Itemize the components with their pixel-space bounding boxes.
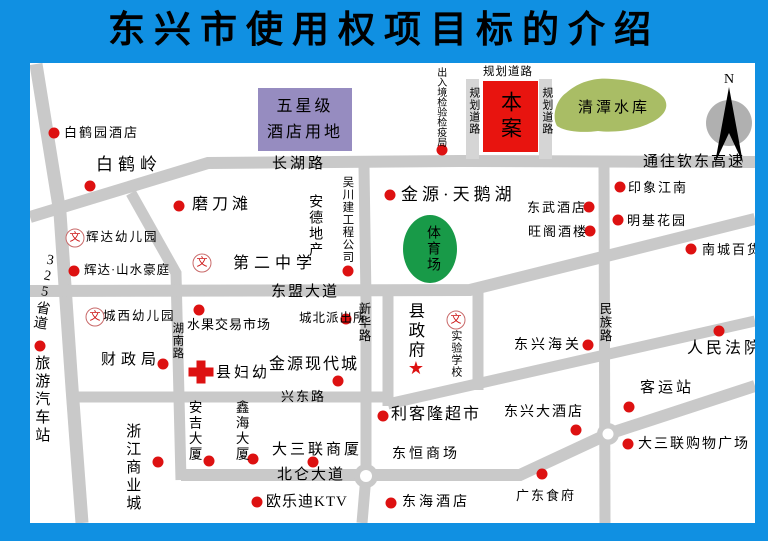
modaotan-label: 磨刀滩: [192, 196, 252, 213]
huida-shanshui-mansion-marker-dot: [69, 266, 80, 277]
yinxiang-jiangnan-marker-dot: [615, 182, 626, 193]
subject-site-box: 本案: [483, 81, 538, 152]
hotel-land-line2: 酒店用地: [267, 120, 343, 146]
baiheling-marker-dot: [85, 181, 96, 192]
hospital-cross-icon: [189, 361, 214, 384]
road-customs-court: [388, 321, 755, 404]
donghai-hotel-label: 东海酒店: [402, 495, 470, 510]
planned-road-top-label: 规划道路: [483, 66, 533, 78]
dasanlian-shopping-plaza-marker-dot: [623, 439, 634, 450]
likelong-supermarket-marker-dot: [378, 411, 389, 422]
dongxing-customs-label: 东兴海关: [514, 338, 582, 353]
dasanlian-building-label: 大三联商厦: [272, 442, 362, 458]
roundabout-west-center: [360, 470, 372, 482]
stadium-label: 体育场: [422, 225, 442, 273]
chengxi-kindergarten-label: 城西幼儿园: [103, 310, 176, 324]
wuchuan-construction-co-label: 吴川建工程公司: [341, 176, 353, 264]
county-maternity-hospital-label: 县妇幼: [216, 365, 270, 381]
anji-building-marker-dot: [204, 456, 215, 467]
guangdong-restaurant-label: 广东食府: [516, 489, 576, 503]
modaotan-marker-dot: [174, 201, 185, 212]
compass-north-label: N: [715, 72, 743, 88]
changhu-road-label: 长湖路: [272, 156, 326, 172]
xinhua-road-label: 新华路: [356, 302, 370, 343]
dongxing-customs-marker-dot: [583, 340, 594, 351]
government-star-icon: ★: [408, 360, 424, 378]
map-poster: 东兴市使用权项目标的介绍: [0, 0, 768, 541]
people-court-marker-dot: [714, 326, 725, 337]
jinyuan-swan-lake-label: 金源·天鹅湖: [401, 186, 516, 204]
jinyuan-modern-city-label: 金源现代城: [269, 356, 359, 373]
oulodi-ktv-label: 欧乐迪KTV: [266, 494, 348, 510]
anji-building-label: 安吉大厦: [186, 400, 201, 462]
tourist-bus-station-marker-dot: [35, 341, 46, 352]
school-icon: 文: [447, 311, 466, 330]
oulodi-ktv-marker-dot: [252, 497, 263, 508]
passenger-station-label: 客运站: [640, 380, 694, 396]
likelong-supermarket-label: 利客隆超市: [391, 406, 481, 423]
school-icon: 文: [86, 308, 105, 327]
zhejiang-commercial-city-label: 浙江商业城: [124, 423, 140, 513]
five-star-hotel-land-box: 五星级 酒店用地: [258, 88, 352, 151]
nancheng-department-store-label: 南城百货: [702, 243, 755, 257]
zhejiang-commercial-city-marker-dot: [153, 457, 164, 468]
mingji-garden-label: 明基花园: [627, 214, 687, 228]
beilun-avenue-label: 北仑大道: [277, 467, 345, 483]
donghai-hotel-marker-dot: [386, 498, 397, 509]
tourist-bus-station-label: 旅游汽车站: [33, 355, 49, 445]
huida-kindergarten-label: 辉达幼儿园: [86, 231, 159, 245]
roundabout-east-center: [603, 429, 614, 440]
school-icon: 文: [193, 254, 212, 273]
fruit-trading-market-marker-dot: [194, 305, 205, 316]
people-court-label: 人民法院: [687, 340, 755, 357]
dasanlian-shopping-plaza-label: 大三联购物广场: [638, 437, 750, 452]
to-qindong-expressway-label: 通往钦东高速: [643, 154, 745, 170]
baiheyuan-hotel-marker-dot: [49, 128, 60, 139]
jinyuan-swan-lake-marker-dot: [385, 190, 396, 201]
dongheng-mall-label: 东恒商场: [392, 447, 460, 462]
dongxing-grand-hotel-label: 东兴大酒店: [504, 405, 584, 420]
county-government-label: 县政府: [406, 302, 424, 361]
dongwu-hotel-label: 东武酒店: [527, 201, 587, 215]
hunan-road-label: 湖南路: [171, 322, 183, 360]
huida-shanshui-mansion-label: 辉达·山水豪庭: [84, 264, 170, 278]
dongxing-grand-hotel-marker-dot: [571, 425, 582, 436]
no2-middle-school-label: 第二中学: [233, 255, 317, 272]
wuchuan-construction-co-marker-dot: [343, 266, 354, 277]
finance-bureau-label: 财政局: [101, 352, 161, 368]
ande-property-label: 安德地产: [307, 194, 322, 258]
map-area: 五星级 酒店用地 本案 清潭水库 体育场 N 白鹤园酒店白鹤岭磨刀滩文辉达幼儿园…: [30, 63, 755, 523]
xinhai-building-marker-dot: [248, 454, 259, 465]
yinxiang-jiangnan-label: 印象江南: [628, 181, 688, 195]
planned-road-left-label: 规划道路: [467, 87, 479, 135]
jinyuan-modern-city-marker-dot: [333, 376, 344, 387]
road-minzu: [604, 167, 605, 523]
entry-exit-inspection-bureau-label: 出入境检验检疫局: [434, 67, 445, 147]
fruit-trading-market-label: 水果交易市场: [187, 318, 271, 332]
reservoir-label: 清潭水库: [578, 96, 650, 117]
page-title: 东兴市使用权项目标的介绍: [0, 4, 768, 58]
baiheling-label: 白鹤岭: [96, 156, 162, 174]
guangdong-restaurant-marker-dot: [537, 469, 548, 480]
dongmeng-avenue-label: 东盟大道: [271, 284, 339, 300]
baiheyuan-hotel-label: 白鹤园酒店: [64, 126, 139, 140]
xingdong-road-label: 兴东路: [281, 390, 326, 404]
wangge-restaurant-label: 旺阁酒楼: [528, 225, 588, 239]
mingji-garden-marker-dot: [613, 215, 624, 226]
nancheng-department-store-marker-dot: [686, 244, 697, 255]
hotel-land-line1: 五星级: [276, 94, 333, 120]
xinhai-building-label: 鑫海大厦: [233, 400, 248, 462]
experimental-school-label: 实验学校: [449, 330, 461, 378]
school-icon: 文: [66, 229, 85, 248]
planned-road-right-label: 规划道路: [540, 87, 552, 135]
minzu-road-label: 民族路: [597, 302, 611, 343]
passenger-station-marker-dot: [624, 402, 635, 413]
